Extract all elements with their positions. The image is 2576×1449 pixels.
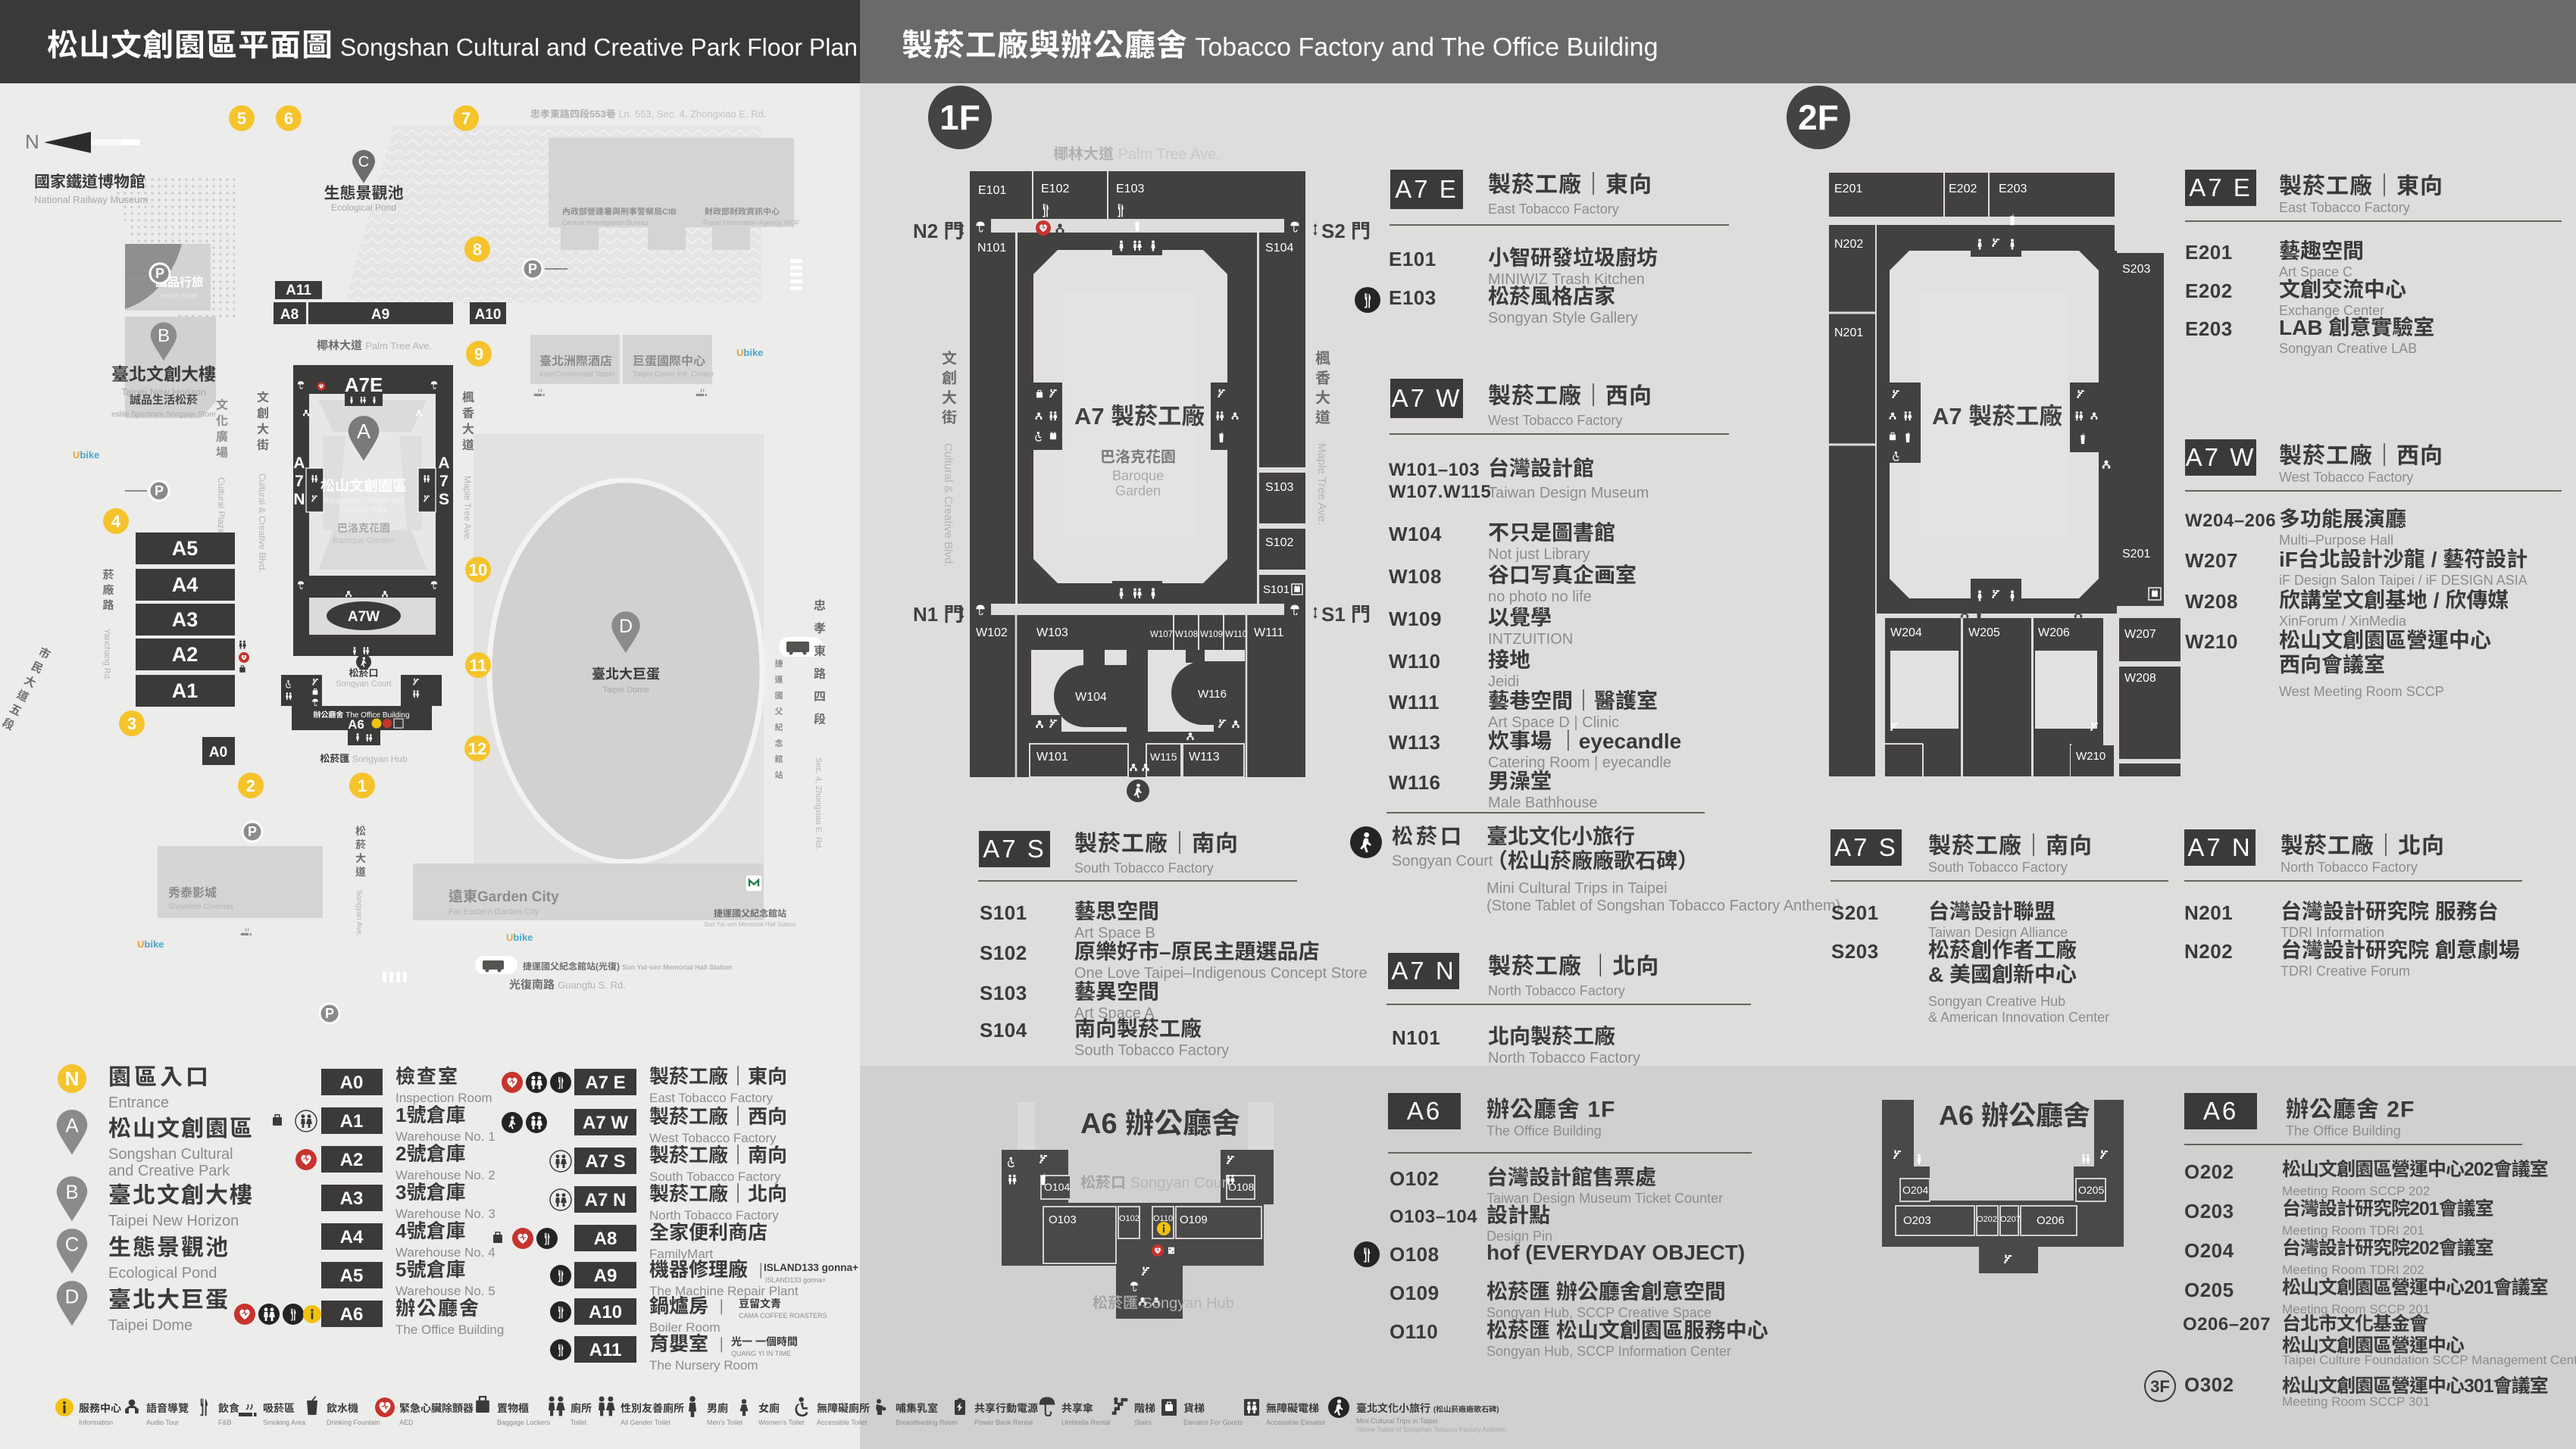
svg-text:Power Bank Rental: Power Bank Rental [974, 1419, 1033, 1426]
svg-text:A11: A11 [286, 283, 311, 298]
svg-text:A8: A8 [280, 307, 299, 323]
svg-text:B: B [65, 1182, 78, 1204]
svg-text:Songyan Hub: Songyan Hub [1143, 1295, 1234, 1312]
svg-text:Cultural & Creative Blvd.: Cultural & Creative Blvd. [942, 443, 955, 567]
svg-text:Boiler Room: Boiler Room [649, 1320, 721, 1335]
svg-text:Creative Park: Creative Park [339, 505, 388, 514]
svg-text:A: A [438, 454, 449, 472]
svg-text:W110: W110 [1225, 630, 1247, 639]
svg-text:W210: W210 [2076, 750, 2106, 763]
svg-text:Warehouse No. 1: Warehouse No. 1 [395, 1129, 496, 1144]
svg-text:D: D [65, 1287, 80, 1308]
svg-text:S: S [439, 491, 449, 508]
svg-text:Ecological Pond: Ecological Pond [108, 1265, 217, 1282]
svg-text:Far Eastern Garden City: Far Eastern Garden City [449, 907, 539, 917]
svg-text:6: 6 [284, 109, 293, 128]
svg-text:4: 4 [111, 512, 121, 531]
svg-text:Taipei New Horizon: Taipei New Horizon [108, 1213, 239, 1229]
svg-text:National Railway Museum: National Railway Museum [34, 194, 148, 205]
svg-text:ISLAND133 gonna+: ISLAND133 gonna+ [764, 1262, 858, 1273]
svg-text:Information: Information [79, 1419, 113, 1426]
svg-text:Stairs: Stairs [1134, 1419, 1152, 1426]
svg-text:O202: O202 [1977, 1215, 1997, 1224]
svg-text:A7 N: A7 N [585, 1190, 627, 1210]
svg-text:C: C [358, 154, 369, 170]
svg-text:&: & [1928, 963, 1943, 986]
svg-text:E201: E201 [1834, 183, 1862, 195]
svg-text:Maple Tree Ave.: Maple Tree Ave. [462, 476, 473, 542]
svg-text:N: N [65, 1067, 80, 1090]
svg-text:A7: A7 [1932, 403, 1962, 429]
svg-text:5: 5 [395, 1258, 406, 1281]
svg-text:1: 1 [395, 1104, 406, 1126]
svg-text:3: 3 [127, 714, 136, 733]
svg-text:Men's Toilet: Men's Toilet [707, 1419, 743, 1426]
svg-text:W205: W205 [1968, 626, 2000, 639]
svg-text:A10: A10 [475, 307, 502, 323]
svg-text:7: 7 [439, 473, 449, 490]
svg-text:West Tobacco Factory: West Tobacco Factory [649, 1131, 777, 1145]
svg-text:A: A [293, 454, 305, 472]
svg-text:10: 10 [469, 561, 487, 579]
svg-text:East Tobacco Factory: East Tobacco Factory [649, 1091, 774, 1105]
svg-text:Entrance: Entrance [108, 1095, 169, 1111]
svg-text:Ubike: Ubike [506, 932, 533, 943]
svg-text:A9: A9 [371, 307, 389, 323]
svg-text:ISLAND133 gonna+: ISLAND133 gonna+ [765, 1276, 826, 1284]
svg-text:W207: W207 [2124, 628, 2156, 641]
svg-text:(: ( [596, 961, 599, 972]
svg-text:W208: W208 [2124, 672, 2156, 685]
svg-text:): ) [617, 961, 620, 972]
svg-text:A2: A2 [340, 1150, 364, 1170]
svg-text:A10: A10 [589, 1302, 622, 1323]
svg-text:The Machine Repair Plant: The Machine Repair Plant [649, 1284, 799, 1298]
svg-text:Warehouse No. 5: Warehouse No. 5 [395, 1284, 496, 1298]
svg-text:Songshan Cultural: Songshan Cultural [108, 1146, 233, 1163]
svg-text:D: D [619, 616, 633, 637]
svg-text:201: 201 [2409, 1198, 2440, 1219]
svg-text:Warehouse No. 2: Warehouse No. 2 [395, 1168, 496, 1182]
svg-text:P: P [155, 266, 164, 281]
svg-text:201: 201 [2464, 1277, 2494, 1298]
svg-text:W204: W204 [1890, 626, 1922, 639]
svg-text:Baroque: Baroque [1112, 468, 1164, 483]
svg-text:A4: A4 [172, 573, 199, 596]
svg-text:LAB: LAB [2279, 316, 2323, 339]
svg-text:Central Investigation Bureau: Central Investigation Bureau [562, 219, 649, 226]
svg-text:S203: S203 [2122, 263, 2150, 276]
svg-text:A7 W: A7 W [583, 1113, 628, 1133]
svg-text:2F: 2F [2387, 1098, 2415, 1123]
svg-text:Elevator For Goods: Elevator For Goods [1183, 1419, 1243, 1426]
svg-text:P: P [155, 483, 164, 498]
svg-text:A1: A1 [172, 679, 199, 702]
svg-text:Sun Yat-sen Memorial Hall Stat: Sun Yat-sen Memorial Hall Station [622, 963, 732, 971]
svg-text:P: P [248, 824, 257, 839]
svg-text:Toilet: Toilet [571, 1419, 587, 1426]
svg-text:N202: N202 [1834, 238, 1863, 251]
svg-text:Baroque Garden: Baroque Garden [333, 536, 394, 545]
svg-text:Taipei Dome Intl. Center: Taipei Dome Intl. Center [633, 370, 714, 379]
svg-text:A5: A5 [340, 1266, 364, 1286]
svg-text:A7 E: A7 E [585, 1073, 625, 1093]
svg-text:A11: A11 [589, 1340, 622, 1360]
svg-text:(Stone Tablet of Songshan Toba: (Stone Tablet of Songshan Tobacco Factor… [1356, 1426, 1507, 1433]
svg-text:All Gender Toilet: All Gender Toilet [621, 1419, 671, 1426]
svg-text:E102: E102 [1041, 183, 1069, 195]
svg-text:O205: O205 [2078, 1184, 2104, 1196]
svg-text:Cultural & Creative Blvd.: Cultural & Creative Blvd. [257, 473, 267, 573]
svg-text:F&B: F&B [218, 1419, 232, 1426]
svg-text:Taipei Dome: Taipei Dome [602, 685, 649, 695]
svg-text:W109: W109 [1200, 630, 1223, 639]
svg-text:Songyan Court: Songyan Court [336, 679, 391, 689]
svg-text:2: 2 [395, 1142, 406, 1165]
svg-text:Garden City: Garden City [477, 889, 559, 905]
svg-text:): ) [1496, 1406, 1499, 1414]
svg-text:E202: E202 [1949, 183, 1977, 195]
svg-text:iF: iF [2279, 548, 2298, 571]
svg-text:InterContinental Taipei: InterContinental Taipei [539, 370, 614, 379]
svg-text:W108: W108 [1175, 630, 1198, 639]
svg-text:P: P [325, 1006, 334, 1021]
svg-text:W116: W116 [1198, 688, 1227, 701]
svg-text:O203: O203 [1903, 1214, 1931, 1227]
svg-text:/: / [2431, 548, 2437, 571]
svg-text:W104: W104 [1075, 691, 1107, 704]
svg-text:12: 12 [468, 739, 486, 758]
svg-text:S201: S201 [2122, 548, 2150, 561]
svg-text:Warehouse No. 4: Warehouse No. 4 [395, 1245, 496, 1260]
svg-text:A: A [65, 1116, 79, 1137]
svg-text:4: 4 [395, 1219, 407, 1242]
svg-text:O109: O109 [1180, 1213, 1208, 1226]
svg-text:Breastfeeding Room: Breastfeeding Room [896, 1419, 958, 1426]
svg-text:Guangfu S. Rd.: Guangfu S. Rd. [558, 979, 626, 991]
svg-text:W113: W113 [1189, 751, 1220, 764]
svg-text:A6: A6 [348, 717, 364, 732]
svg-text:A7 S: A7 S [585, 1151, 625, 1172]
svg-text:2F: 2F [1798, 98, 1839, 137]
svg-text:N: N [25, 130, 39, 153]
svg-text:CAMA COFFEE ROASTERS: CAMA COFFEE ROASTERS [739, 1312, 827, 1319]
svg-text:Songyan Ave.: Songyan Ave. [355, 890, 363, 937]
svg-text:Mini Cultural Trips in Taipei: Mini Cultural Trips in Taipei [1356, 1417, 1437, 1425]
svg-text:301: 301 [2464, 1376, 2494, 1397]
svg-text:Palm Tree Ave.: Palm Tree Ave. [365, 340, 432, 351]
svg-text:South Tobacco Factory: South Tobacco Factory [649, 1170, 781, 1184]
svg-text:A3: A3 [172, 608, 199, 631]
svg-text:O207: O207 [2000, 1215, 2021, 1224]
svg-text:A6: A6 [340, 1304, 364, 1325]
svg-text:3F: 3F [2150, 1377, 2170, 1396]
svg-text:Sun Yat-sen Memorial Hall Stat: Sun Yat-sen Memorial Hall Station [704, 921, 796, 928]
svg-text:A8: A8 [594, 1229, 617, 1249]
svg-text:A5: A5 [172, 537, 199, 560]
svg-text:–: – [1159, 940, 1171, 963]
svg-text:A7W: A7W [348, 609, 380, 625]
svg-text:Baggage Lockers: Baggage Lockers [497, 1419, 551, 1426]
svg-text:eyecandle: eyecandle [1579, 729, 1681, 753]
svg-text:The Nursery Room: The Nursery Room [649, 1358, 758, 1372]
svg-text:E203: E203 [1999, 183, 2027, 195]
svg-text:Warehouse No. 3: Warehouse No. 3 [395, 1207, 496, 1221]
svg-text:S1: S1 [1321, 603, 1346, 626]
svg-text:Cultural Plaza: Cultural Plaza [216, 477, 227, 534]
svg-text:Songyan Hub: Songyan Hub [352, 754, 408, 764]
svg-text:Sec. 4, Zhongxiao E. Rd.: Sec. 4, Zhongxiao E. Rd. [814, 757, 823, 850]
svg-text:O102: O102 [1119, 1214, 1140, 1223]
svg-text:7: 7 [461, 109, 470, 128]
svg-text:N2: N2 [913, 220, 938, 242]
svg-text:eslite hotel: eslite hotel [161, 292, 198, 301]
svg-text:O206: O206 [2037, 1214, 2065, 1227]
svg-text:5: 5 [237, 109, 246, 128]
svg-text:S104: S104 [1265, 242, 1293, 255]
svg-text:Drinking Fountain: Drinking Fountain [327, 1419, 380, 1426]
svg-text:Accessible Elevator: Accessible Elevator [1266, 1419, 1326, 1426]
svg-text:W206: W206 [2038, 626, 2070, 639]
svg-text:202: 202 [2409, 1238, 2439, 1259]
svg-text:Smoking Area: Smoking Area [263, 1419, 305, 1426]
svg-text:11: 11 [469, 656, 486, 675]
svg-text:A7: A7 [1074, 403, 1105, 429]
svg-text:O103: O103 [1049, 1213, 1077, 1226]
svg-text:Palm Tree Ave.: Palm Tree Ave. [1118, 146, 1221, 163]
svg-text:A0: A0 [209, 745, 227, 760]
svg-text:Ecological Pond: Ecological Pond [331, 202, 396, 213]
svg-text:A6: A6 [1080, 1108, 1118, 1140]
svg-text:Umbrella Rental: Umbrella Rental [1061, 1419, 1111, 1426]
svg-text:E101: E101 [978, 184, 1006, 197]
svg-text:1F: 1F [1587, 1098, 1615, 1123]
svg-text:W102: W102 [976, 626, 1008, 639]
svg-text:Songyan Court: Songyan Court [1130, 1175, 1232, 1191]
svg-text:CIB: CIB [662, 208, 677, 217]
svg-text:Tobacco Factory and The Office: Tobacco Factory and The Office Building [1195, 33, 1658, 62]
svg-text:Inspection Room: Inspection Room [395, 1091, 492, 1105]
svg-text:A4: A4 [340, 1227, 364, 1248]
svg-text:North Tobacco Factory: North Tobacco Factory [649, 1208, 779, 1223]
svg-text:/: / [2434, 589, 2440, 612]
svg-text:FamilyMart: FamilyMart [649, 1247, 713, 1261]
svg-text:A6: A6 [1939, 1100, 1974, 1131]
svg-text:Fiscal Information Agency, MOF: Fiscal Information Agency, MOF [703, 219, 800, 226]
svg-text:Taipei New Horizon: Taipei New Horizon [121, 386, 206, 398]
svg-text:A: A [357, 420, 370, 443]
svg-text:Audio Tour: Audio Tour [146, 1419, 179, 1426]
svg-text:S103: S103 [1265, 481, 1293, 494]
svg-text:W107: W107 [1150, 630, 1173, 639]
svg-text:Maple Tree Ave.: Maple Tree Ave. [1315, 443, 1328, 525]
svg-text:W115: W115 [1150, 751, 1177, 763]
svg-text:9: 9 [474, 345, 483, 364]
svg-text:3: 3 [395, 1181, 406, 1204]
svg-text:P: P [528, 261, 537, 276]
svg-text:O204: O204 [1902, 1184, 1928, 1196]
svg-text:8: 8 [473, 240, 482, 259]
svg-text:Women's Toilet: Women's Toilet [758, 1419, 805, 1426]
svg-text:Ln. 553, Sec. 4, Zhongxiao E.: Ln. 553, Sec. 4, Zhongxiao E. Rd. [618, 108, 766, 120]
svg-text:O104: O104 [1044, 1181, 1070, 1193]
svg-text:N1: N1 [913, 603, 938, 626]
svg-text:Yanchang Rd.: Yanchang Rd. [102, 629, 111, 681]
svg-text:1F: 1F [939, 98, 980, 137]
svg-text:N101: N101 [977, 242, 1006, 255]
svg-text:S101: S101 [1263, 583, 1290, 596]
svg-text:S2: S2 [1321, 220, 1346, 242]
svg-text:W103: W103 [1036, 626, 1068, 639]
svg-text:553: 553 [589, 108, 606, 120]
svg-text:A1: A1 [340, 1111, 364, 1132]
svg-text:Showtime Cinemas: Showtime Cinemas [168, 903, 233, 911]
svg-text:N: N [293, 491, 305, 508]
svg-text:B: B [158, 326, 170, 346]
svg-text:S102: S102 [1265, 536, 1293, 549]
svg-text:Ubike: Ubike [73, 449, 99, 461]
svg-text:Accessible Toilet: Accessible Toilet [817, 1419, 868, 1426]
svg-text:QUANG YI IN TIME: QUANG YI IN TIME [731, 1350, 791, 1357]
svg-text:A2: A2 [172, 643, 199, 666]
svg-text:N201: N201 [1834, 326, 1863, 339]
svg-text:Songshan Cultural and Creative: Songshan Cultural and Creative Park Floo… [340, 34, 858, 61]
svg-text:A0: A0 [340, 1073, 364, 1093]
svg-text:Songshan Cultural and: Songshan Cultural and [324, 496, 405, 505]
svg-text:W111: W111 [1254, 626, 1284, 639]
svg-text:eslite Spectrum Songyan Store: eslite Spectrum Songyan Store [111, 411, 216, 419]
svg-text:202: 202 [2464, 1159, 2493, 1180]
svg-text:(: ( [1433, 1406, 1436, 1414]
svg-text:7: 7 [295, 473, 304, 490]
svg-text:A3: A3 [340, 1188, 364, 1209]
svg-text:C: C [65, 1235, 80, 1256]
svg-text:W101: W101 [1036, 751, 1068, 764]
svg-text:E103: E103 [1116, 183, 1144, 195]
svg-text:and Creative Park: and Creative Park [108, 1163, 230, 1179]
svg-text:A9: A9 [594, 1266, 617, 1286]
svg-text:2: 2 [246, 776, 255, 795]
svg-text:Ubike: Ubike [137, 938, 164, 950]
svg-text:Ubike: Ubike [736, 347, 763, 358]
svg-text:AED: AED [399, 1419, 414, 1426]
svg-text:Garden: Garden [1115, 483, 1161, 498]
svg-text:1: 1 [358, 776, 367, 795]
svg-text:Taipei Dome: Taipei Dome [108, 1317, 192, 1334]
